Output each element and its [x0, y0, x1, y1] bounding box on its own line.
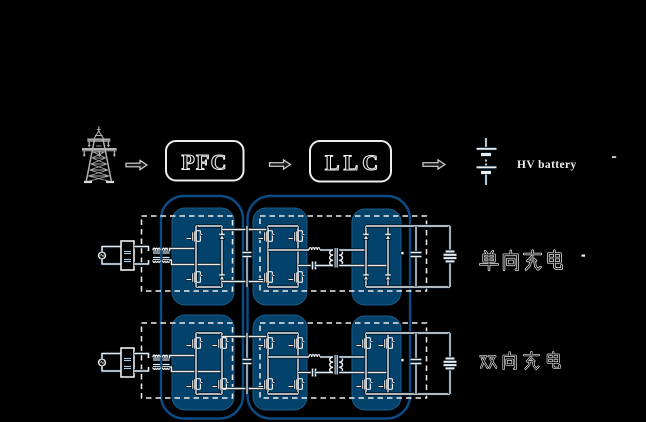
- svg-text:LLC: LLC: [325, 150, 382, 175]
- svg-text:PFC: PFC: [181, 150, 227, 175]
- svg-text:HV battery: HV battery: [517, 159, 577, 171]
